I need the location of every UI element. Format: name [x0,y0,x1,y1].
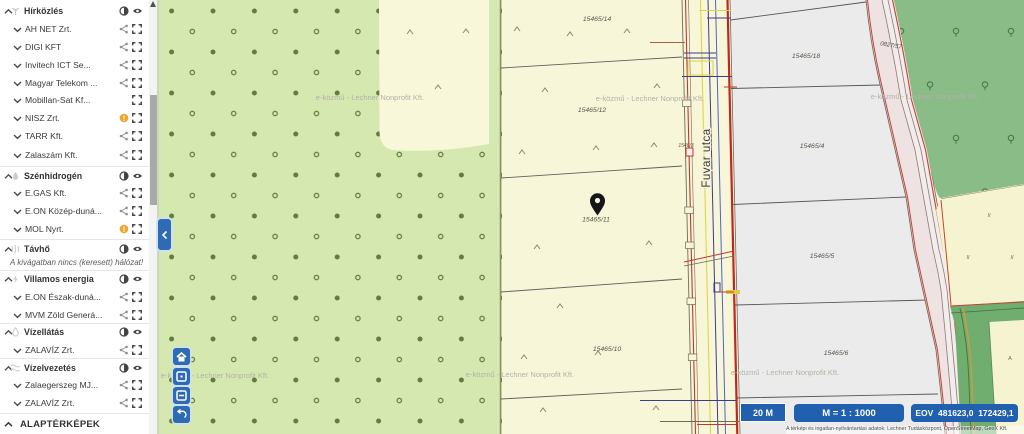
svg-text:II: II [966,255,970,261]
svg-text:15465/18: 15465/18 [792,53,821,60]
svg-text:e-közmű - Lechner Nonprofit Kf: e-közmű - Lechner Nonprofit Kft. [871,92,979,101]
svg-text:15465/12: 15465/12 [578,107,607,114]
svg-text:15465/10: 15465/10 [593,346,622,353]
svg-text:e-közmű - Lechner Nonprofit Kf: e-közmű - Lechner Nonprofit Kft. [316,93,424,102]
svg-text:15465/14: 15465/14 [583,16,612,23]
svg-text:II: II [987,213,991,219]
svg-text:II: II [1010,255,1014,261]
svg-text:e-közmű - Lechner Nonprofit Kf: e-közmű - Lechner Nonprofit Kft. [731,368,839,377]
svg-text:15465/11: 15465/11 [582,217,610,224]
svg-text:15465/5: 15465/5 [810,253,835,260]
svg-text:e-közmű - Lechner Nonprofit Kf: e-közmű - Lechner Nonprofit Kft. [466,370,574,379]
svg-text:A: A [1008,356,1012,362]
svg-text:Fuvar utca: Fuvar utca [701,128,713,187]
svg-text:15465/4: 15465/4 [800,143,825,150]
svg-text:15465/6: 15465/6 [824,350,849,357]
svg-text:e-közmű - Lechner Nonprofit Kf: e-közmű - Lechner Nonprofit Kft. [596,94,704,103]
